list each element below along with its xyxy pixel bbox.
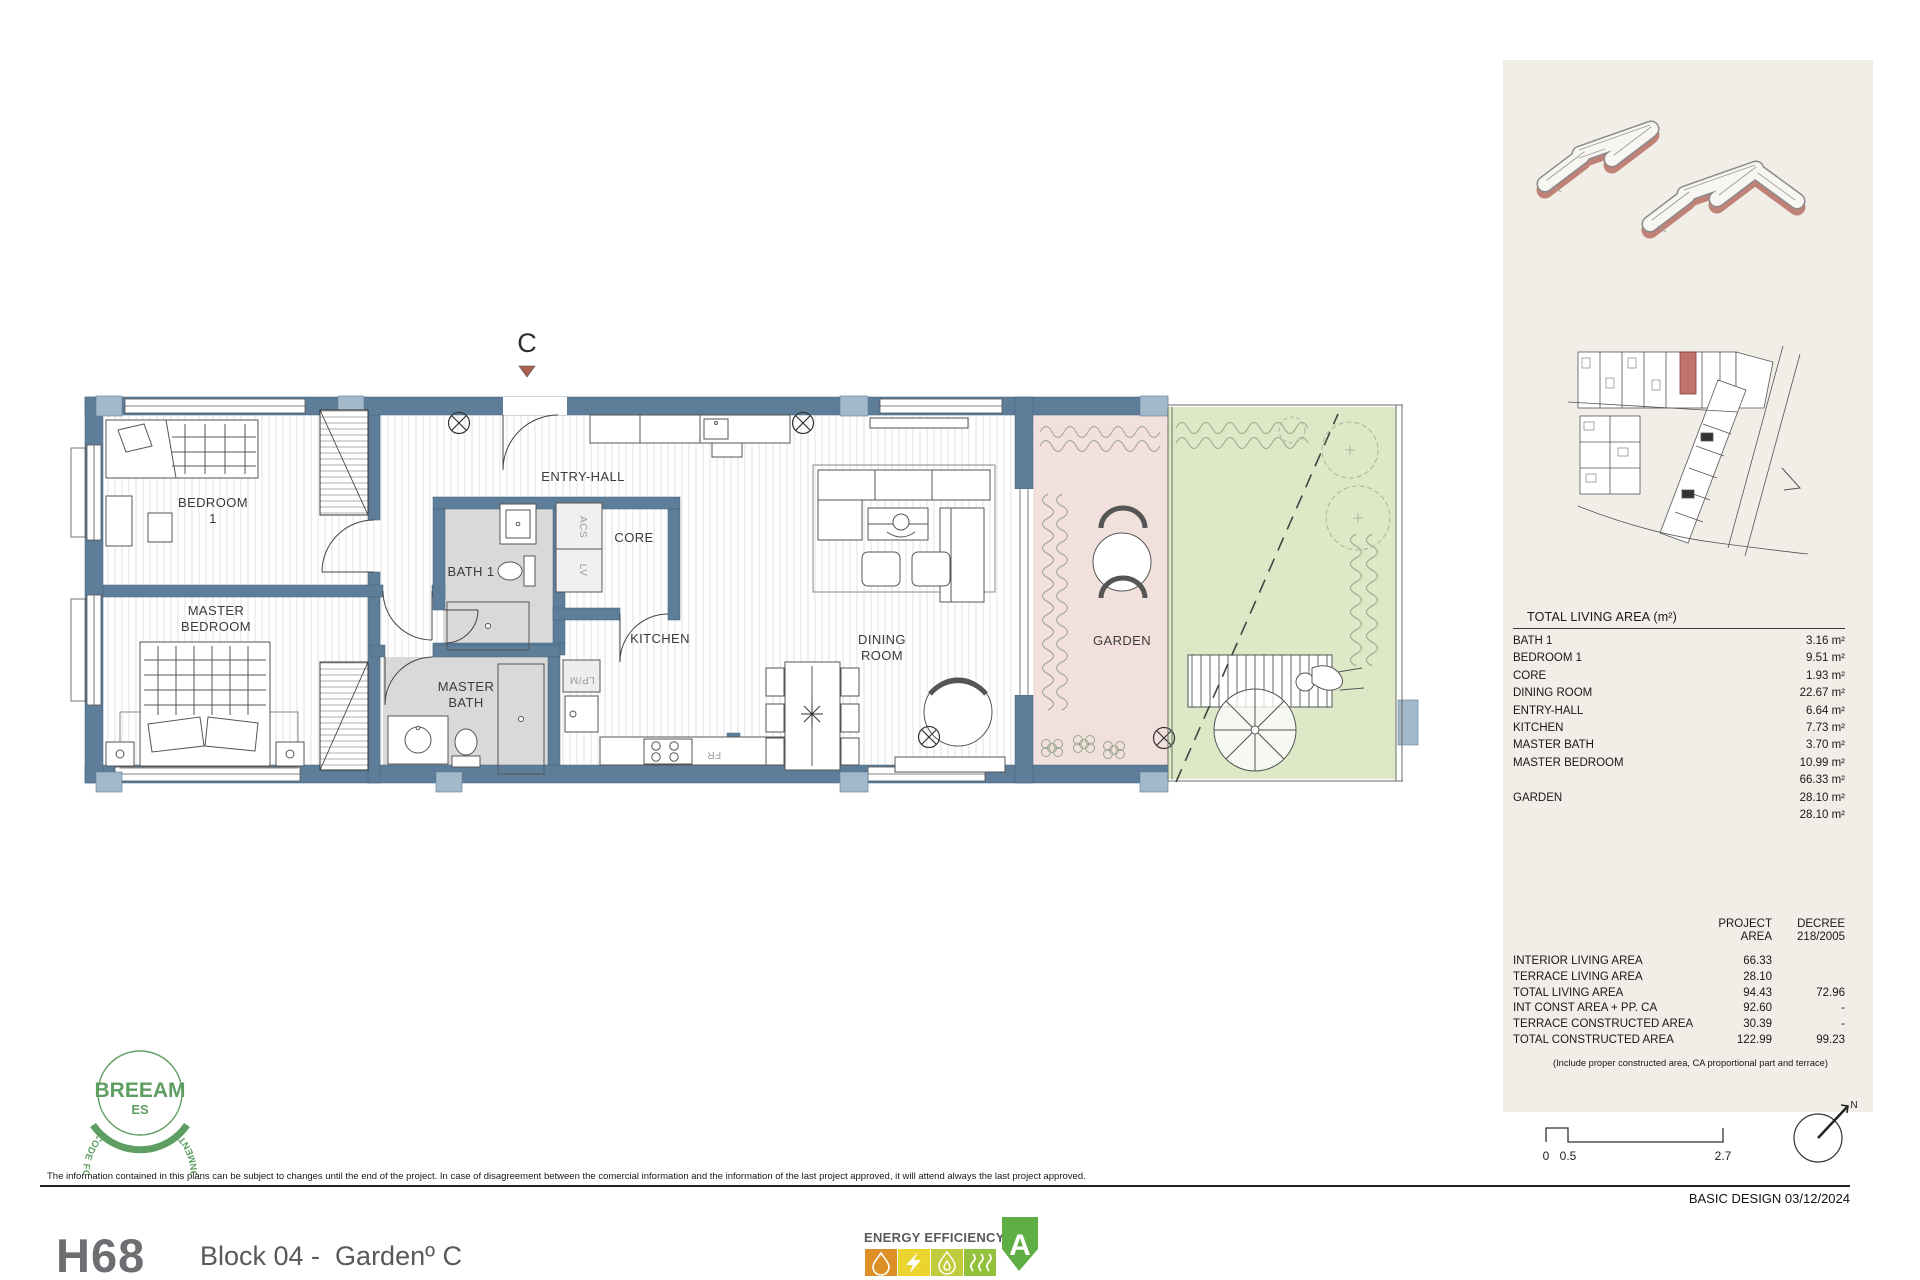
breeam-logo: CODE FOR A SUSTAINABLE BUILT ENVIRONMENT… [55, 1015, 225, 1175]
unit-title: Block 04 - Gardenº C [200, 1241, 462, 1272]
section-arrow-icon [519, 366, 535, 377]
room-label-master-bath: MASTER [438, 679, 495, 694]
room-label-master-bedroom: MASTER [188, 603, 245, 618]
label-acs: ACS [577, 516, 588, 538]
table-row: CORE1.93 m² [1513, 668, 1845, 685]
room-label-entry-hall: ENTRY-HALL [541, 469, 624, 484]
svg-text:0: 0 [1543, 1149, 1550, 1163]
table-row: MASTER BEDROOM10.99 m² [1513, 755, 1845, 772]
unit-code: H68 [56, 1228, 145, 1280]
umbrella-icon [1214, 689, 1296, 771]
section-marker: C [517, 328, 537, 377]
table-row: TERRACE LIVING AREA28.10 [1513, 970, 1845, 986]
summary-table-header: PROJECTAREA DECREE218/2005 [1513, 918, 1845, 944]
svg-text:N: N [1850, 1100, 1857, 1111]
desk-icon [106, 496, 132, 546]
label-fr: FR [707, 749, 721, 760]
living-area-table: TOTAL LIVING AREA (m²) BATH 13.16 m² BED… [1513, 610, 1845, 824]
building-render [1535, 80, 1835, 330]
north-compass-icon: N [1786, 1096, 1866, 1176]
scale-bar: 0 0.5 2.7 [1538, 1116, 1748, 1166]
energy-heading: ENERGY EFFICIENCY [864, 1230, 1005, 1245]
table-row: KITCHEN7.73 m² [1513, 720, 1845, 737]
bed-single-icon [106, 420, 258, 478]
summary-table-note: (Include proper constructed area, CA pro… [1513, 1058, 1845, 1068]
label-lv: LV [577, 564, 588, 577]
room-label-dining: DINING [858, 632, 906, 647]
svg-text:0.5: 0.5 [1560, 1149, 1577, 1163]
living-area-table-title: TOTAL LIVING AREA (m²) [1513, 610, 1845, 629]
table-row: BATH 13.16 m² [1513, 633, 1845, 650]
table-row: TOTAL CONSTRUCTED AREA122.9999.23 [1513, 1033, 1845, 1049]
label-lpm: LP/M [569, 674, 594, 685]
floor-plan: C [60, 260, 1440, 830]
console-table-icon [870, 418, 968, 428]
nightstand-icon [148, 513, 172, 542]
table-row: TERRACE CONSTRUCTED AREA30.39- [1513, 1017, 1845, 1033]
plan-sheet: C [0, 0, 1920, 1280]
site-plan [1568, 338, 1828, 568]
svg-text:ROOM: ROOM [861, 648, 903, 663]
table-row: TOTAL LIVING AREA94.4372.96 [1513, 986, 1845, 1002]
table-row: DINING ROOM22.67 m² [1513, 685, 1845, 702]
table-row: BEDROOM 19.51 m² [1513, 650, 1845, 667]
room-label-garden: GARDEN [1093, 633, 1151, 648]
svg-text:BEDROOM: BEDROOM [181, 619, 251, 634]
room-label-bedroom1: BEDROOM [178, 495, 248, 510]
table-row: ENTRY-HALL6.64 m² [1513, 703, 1845, 720]
svg-text:C: C [517, 328, 537, 358]
site-plan-highlighted-unit [1680, 352, 1696, 394]
summary-table: PROJECTAREA DECREE218/2005 INTERIOR LIVI… [1513, 918, 1845, 1068]
svg-text:BATH: BATH [448, 695, 483, 710]
table-row: MASTER BATH3.70 m² [1513, 737, 1845, 754]
svg-text:BREEAM: BREEAM [94, 1079, 185, 1102]
table-row: GARDEN28.10 m² [1513, 790, 1845, 807]
room-label-bath1: BATH 1 [448, 564, 495, 579]
room-label-kitchen: KITCHEN [630, 631, 690, 646]
table-row: INT CONST AREA + PP. CA92.60- [1513, 1001, 1845, 1017]
dining-table-icon [766, 662, 859, 770]
svg-text:1: 1 [209, 511, 217, 526]
svg-text:2.7: 2.7 [1715, 1149, 1732, 1163]
room-label-core: CORE [614, 530, 653, 545]
table-row-subtotal: 28.10 m² [1513, 807, 1845, 824]
basic-design-date: BASIC DESIGN 03/12/2024 [1689, 1191, 1850, 1206]
footer-rule [40, 1185, 1850, 1187]
svg-text:ES: ES [131, 1102, 149, 1117]
table-row: INTERIOR LIVING AREA66.33 [1513, 954, 1845, 970]
footer-disclaimer: The information contained in this plans … [47, 1171, 1547, 1182]
table-row-subtotal: 66.33 m² [1513, 772, 1845, 789]
energy-efficiency-label: ENERGY EFFICIENCY A [862, 1213, 1047, 1279]
svg-text:A: A [1009, 1229, 1031, 1262]
